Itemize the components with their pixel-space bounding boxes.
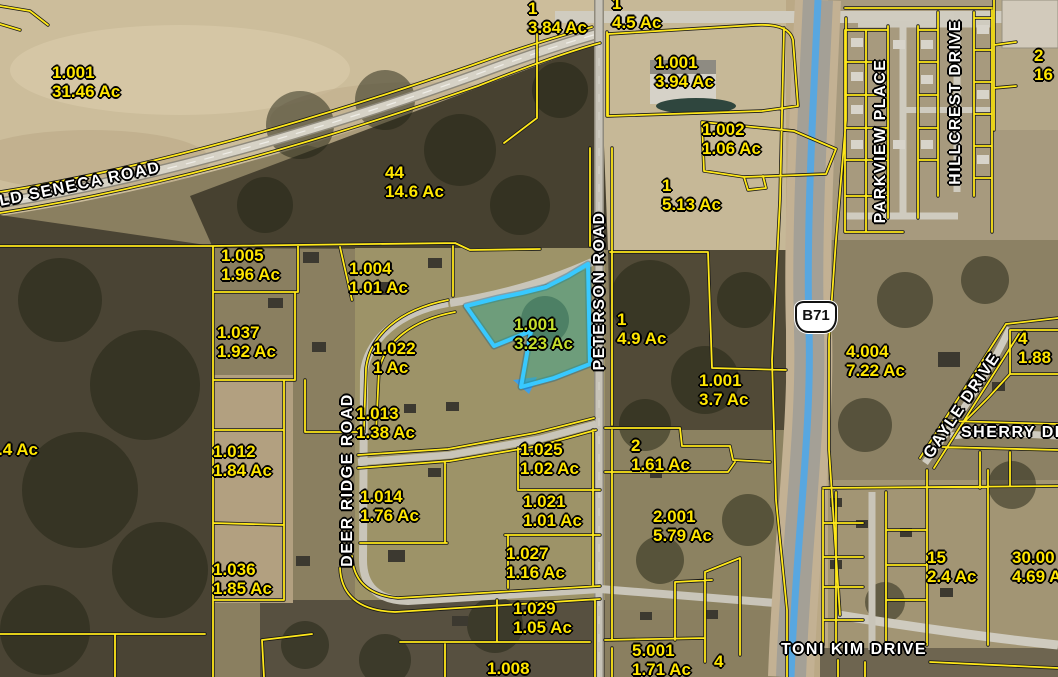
parcel-label: 1.0251.02 Ac xyxy=(520,440,579,478)
parcel-label: 1.0051.96 Ac xyxy=(221,246,280,284)
parcel-label: 1.0141.76 Ac xyxy=(360,487,419,525)
road-label-parkview: PARKVIEW PLACE xyxy=(872,59,890,224)
parcel-label: 1.008 xyxy=(487,659,530,677)
parcel-label: 1.0221 Ac xyxy=(373,339,416,377)
parcel-label: 4414.6 Ac xyxy=(385,163,444,201)
parcel-label: 2.0015.79 Ac xyxy=(653,507,712,545)
parcel-label: 14.5 Ac xyxy=(612,0,661,32)
parcel-label: 1.0291.05 Ac xyxy=(513,599,572,637)
parcel-label: 4.0047.22 Ac xyxy=(846,342,905,380)
selected-parcel-label: 1.0013.23 Ac xyxy=(514,315,573,353)
parcel-label: 1.0121.84 Ac xyxy=(213,442,272,480)
road-label-sherry: SHERRY DRIVE xyxy=(961,424,1058,442)
parcel-label: 41.88 xyxy=(1018,329,1051,367)
parcel-label: 1.0131.38 Ac xyxy=(356,404,415,442)
parcel-label: 14.9 Ac xyxy=(617,310,666,348)
parcel-label: 1.0013.7 Ac xyxy=(699,371,748,409)
parcel-label: 216 xyxy=(1034,46,1053,84)
parcel-label: 1.0371.92 Ac xyxy=(217,323,276,361)
parcel-label: 1.0021.06 Ac xyxy=(702,120,761,158)
parcel-label: 1.0013.94 Ac xyxy=(655,53,714,91)
map-canvas[interactable]: 1.00131.46 Ac 13.84 Ac 14.5 Ac 1.0013.94… xyxy=(0,0,1058,677)
parcel-label: 13.84 Ac xyxy=(528,0,587,37)
parcel-label: .4 Ac xyxy=(0,440,38,459)
parcel-label: 4 xyxy=(714,652,723,671)
parcel-label: 15.13 Ac xyxy=(662,176,721,214)
parcel-label: 1.00131.46 Ac xyxy=(52,63,120,101)
parcel-label: 1.0271.16 Ac xyxy=(506,544,565,582)
road-label-hillcrest: HILLCREST DRIVE xyxy=(947,19,965,185)
parcel-label: 1.0211.01 Ac xyxy=(523,492,582,530)
parcel-label: 1.0361.85 Ac xyxy=(213,560,272,598)
parcel-label: 152.4 Ac xyxy=(927,548,976,586)
parcel-label: 5.0011.71 Ac xyxy=(632,641,691,677)
highway-b71 xyxy=(791,0,818,677)
road-label-deer-ridge: DEER RIDGE ROAD xyxy=(339,393,357,567)
parcel-label: 21.61 Ac xyxy=(631,436,690,474)
road-label-toni-kim: TONI KIM DRIVE xyxy=(781,641,927,659)
parcel-label: 30.004.69 A xyxy=(1012,548,1058,586)
road-label-peterson: PETERSON ROAD xyxy=(591,211,609,370)
parcel-label: 1.0041.01 Ac xyxy=(349,259,408,297)
highway-shield: B71 xyxy=(795,301,837,333)
